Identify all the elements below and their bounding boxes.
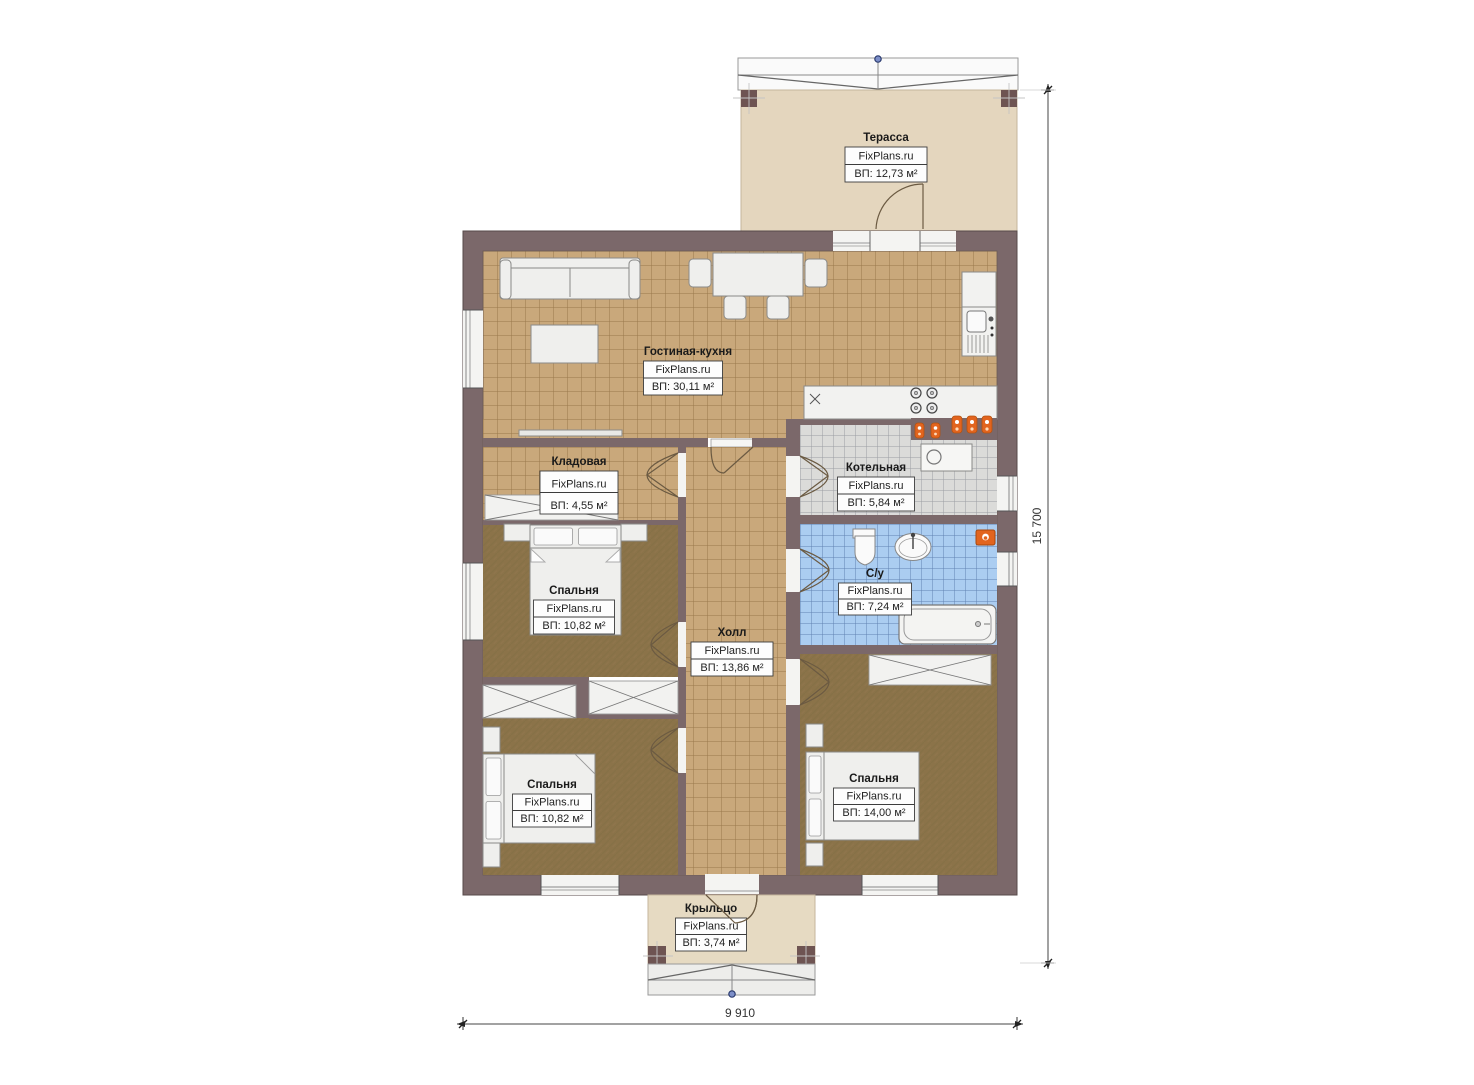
svg-text:Терасса: Терасса [863, 132, 909, 144]
svg-text:ВП: 10,82 м²: ВП: 10,82 м² [520, 813, 584, 825]
svg-text:9 910: 9 910 [725, 1006, 755, 1020]
svg-text:15 700: 15 700 [1030, 507, 1044, 544]
svg-text:FixPlans.ru: FixPlans.ru [848, 480, 903, 492]
svg-text:FixPlans.ru: FixPlans.ru [551, 479, 606, 491]
svg-text:ВП: 7,24 м²: ВП: 7,24 м² [846, 601, 903, 613]
svg-text:ВП: 14,00 м²: ВП: 14,00 м² [842, 807, 906, 819]
svg-text:FixPlans.ru: FixPlans.ru [655, 364, 710, 376]
svg-text:FixPlans.ru: FixPlans.ru [858, 151, 913, 163]
svg-text:ВП: 4,55 м²: ВП: 4,55 м² [550, 500, 607, 512]
svg-text:FixPlans.ru: FixPlans.ru [683, 921, 738, 933]
svg-text:FixPlans.ru: FixPlans.ru [847, 585, 902, 597]
svg-text:Спальня: Спальня [549, 585, 599, 597]
svg-text:ВП: 13,86 м²: ВП: 13,86 м² [700, 662, 764, 674]
svg-text:FixPlans.ru: FixPlans.ru [704, 645, 759, 657]
svg-text:ВП: 30,11 м²: ВП: 30,11 м² [652, 381, 715, 393]
svg-text:Спальня: Спальня [527, 779, 577, 791]
svg-text:FixPlans.ru: FixPlans.ru [546, 603, 601, 615]
svg-text:Крыльцо: Крыльцо [685, 903, 737, 915]
svg-text:ВП: 5,84 м²: ВП: 5,84 м² [847, 497, 904, 509]
svg-text:ВП: 3,74 м²: ВП: 3,74 м² [682, 937, 739, 949]
svg-text:Кладовая: Кладовая [551, 456, 606, 468]
svg-text:ВП: 12,73 м²: ВП: 12,73 м² [854, 168, 918, 180]
svg-text:Холл: Холл [718, 627, 747, 639]
svg-text:FixPlans.ru: FixPlans.ru [846, 791, 901, 803]
svg-text:Котельная: Котельная [846, 462, 906, 474]
svg-text:Гостиная-кухня: Гостиная-кухня [644, 346, 732, 358]
svg-text:Спальня: Спальня [849, 773, 899, 785]
svg-text:FixPlans.ru: FixPlans.ru [524, 797, 579, 809]
svg-text:ВП: 10,82 м²: ВП: 10,82 м² [542, 620, 606, 632]
svg-text:С/у: С/у [866, 568, 885, 580]
